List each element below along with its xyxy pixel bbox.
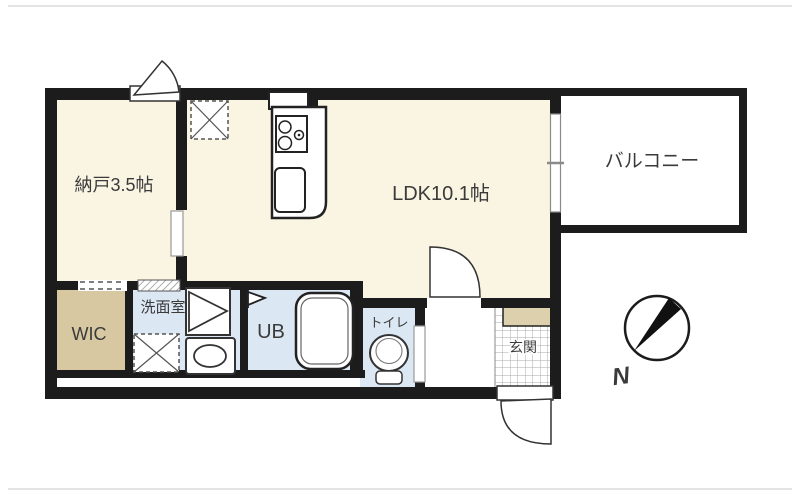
label-balcony: バルコニー xyxy=(605,151,700,172)
refrigerator-space-icon xyxy=(191,101,228,139)
compass: N xyxy=(610,296,689,391)
washbasin-icon xyxy=(186,338,235,374)
floorplan-svg: 納戸3.5帖 LDK10.1帖 バルコニー WIC 洗面室 UB トイレ 玄関 … xyxy=(0,0,800,494)
hallway-floor xyxy=(420,303,495,390)
bathtub-icon xyxy=(296,293,353,369)
wall-senmen-ub xyxy=(240,281,248,378)
toilet-door xyxy=(414,326,425,382)
kitchen-sink-icon xyxy=(275,168,305,212)
wall-bottom xyxy=(45,387,561,399)
ldk-hall-door-gap xyxy=(427,297,481,309)
kitchen-counter-icon xyxy=(272,107,326,218)
wall-balcony-bottom xyxy=(550,225,747,233)
label-ldk: LDK10.1帖 xyxy=(392,182,490,205)
nando-sliding-door xyxy=(171,211,183,256)
floorplan-image: 納戸3.5帖 LDK10.1帖 バルコニー WIC 洗面室 UB トイレ 玄関 … xyxy=(0,0,800,494)
toilet-icon xyxy=(370,335,408,384)
wall-balcony-top xyxy=(561,88,747,96)
label-genkan: 玄関 xyxy=(509,339,537,355)
senmen-sliding-door xyxy=(138,280,180,291)
label-ub: UB xyxy=(257,321,285,343)
washing-machine-space-icon xyxy=(186,288,230,335)
entry-door-sill xyxy=(497,386,553,400)
top-door-swing-arc xyxy=(134,61,179,95)
laundry-pan-icon xyxy=(134,334,179,372)
wall-balcony-right xyxy=(739,88,747,233)
wall-left xyxy=(45,88,57,399)
label-wic: WIC xyxy=(72,324,107,344)
genkan-step-shoebox xyxy=(503,305,555,326)
wall-nando-ldk-upper xyxy=(176,88,187,210)
label-nando: 納戸3.5帖 xyxy=(74,175,153,195)
label-toilet: トイレ xyxy=(369,315,408,330)
wall-wic-senmen xyxy=(125,281,133,378)
entry-door-swing-arc xyxy=(501,399,551,444)
stove-icon xyxy=(276,116,307,152)
room-ldk-floor xyxy=(182,95,555,303)
compass-north-label: N xyxy=(610,362,632,391)
wall-right-upper xyxy=(550,88,561,114)
label-senmen: 洗面室 xyxy=(140,299,185,316)
